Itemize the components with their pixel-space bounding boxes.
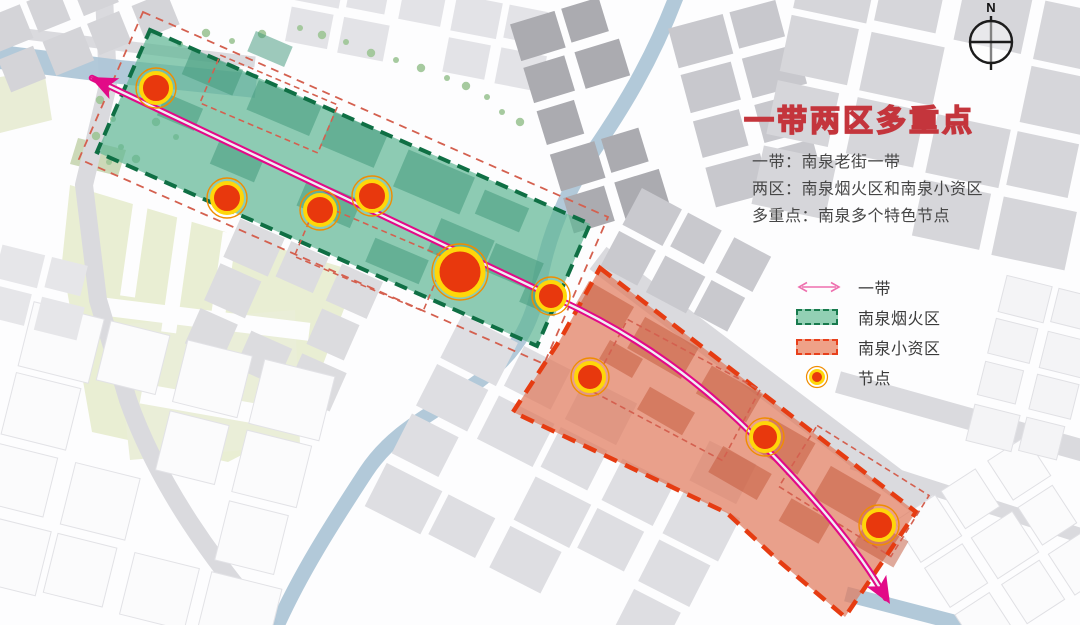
tree-dot <box>297 25 303 31</box>
node-core <box>864 510 894 540</box>
node-core <box>357 181 387 211</box>
legend-label-belt: 一带 <box>858 275 891 299</box>
node-core <box>576 363 604 391</box>
node-core <box>212 183 242 213</box>
tree-dot <box>229 38 235 44</box>
tree-dot <box>417 64 425 72</box>
legend-label-node: 节点 <box>858 365 891 389</box>
page-title: 一带两区多重点 <box>744 96 975 140</box>
legend-belt-arrow-icon <box>796 280 844 294</box>
node-core <box>537 282 565 310</box>
tree-dot <box>484 94 490 100</box>
tree-dot <box>92 132 100 140</box>
node-core <box>141 73 171 103</box>
tree-dot <box>393 57 399 63</box>
node-marker-9 <box>859 505 899 545</box>
legend-node-icon <box>796 364 844 390</box>
node-marker-2 <box>207 178 247 218</box>
node-marker-4 <box>352 176 392 216</box>
tree-dot <box>202 29 210 37</box>
zone-red-swatch-box <box>796 339 838 355</box>
tree-dot <box>516 118 524 126</box>
legend-item-zone-red: 南泉小资区 <box>796 332 941 362</box>
legend: 一带南泉烟火区南泉小资区节点 <box>796 272 941 392</box>
description-line-2: 两区：南泉烟火区和南泉小资区 <box>752 176 983 203</box>
node-marker-6 <box>532 277 570 315</box>
tree-dot <box>499 109 505 115</box>
node-marker-5 <box>432 244 488 300</box>
legend-item-zone-green: 南泉烟火区 <box>796 302 941 332</box>
node-marker-8 <box>746 418 784 456</box>
zone-green-swatch-box <box>796 309 838 325</box>
node-core <box>437 249 483 295</box>
node-core <box>751 423 779 451</box>
node-marker-3 <box>300 190 340 230</box>
node-marker-7 <box>571 358 609 396</box>
tree-dot <box>318 31 326 39</box>
compass-north-label: N <box>986 0 995 15</box>
legend-item-node: 节点 <box>796 362 941 392</box>
description-block: 一带：南泉老街一带两区：南泉烟火区和南泉小资区多重点：南泉多个特色节点 <box>752 149 983 230</box>
description-line-1: 一带：南泉老街一带 <box>752 149 983 176</box>
node-marker-1 <box>136 68 176 108</box>
legend-label-zone-red: 南泉小资区 <box>858 335 941 359</box>
tree-dot <box>462 82 470 90</box>
tree-dot <box>367 49 375 57</box>
node-core <box>305 195 335 225</box>
tree-dot <box>444 75 450 81</box>
tree-dot <box>343 39 349 45</box>
legend-zone-green-swatch <box>796 309 844 325</box>
planning-map-page: N 一带两区多重点 一带：南泉老街一带两区：南泉烟火区和南泉小资区多重点：南泉多… <box>0 0 1080 625</box>
legend-zone-red-swatch <box>796 339 844 355</box>
legend-item-belt: 一带 <box>796 272 941 302</box>
legend-label-zone-green: 南泉烟火区 <box>858 305 941 329</box>
description-line-3: 多重点：南泉多个特色节点 <box>752 203 983 230</box>
